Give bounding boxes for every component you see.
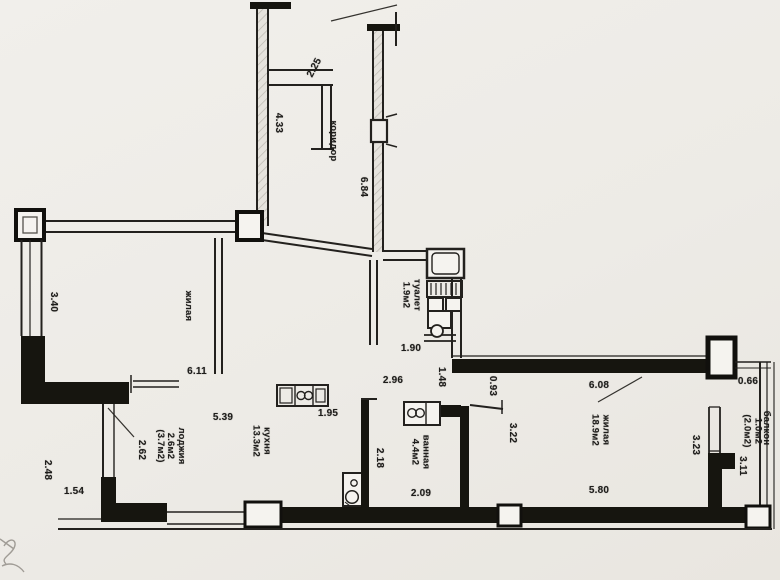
floor-plan-scan: 2.25 4.33 коридор 6.84 туалет 1.9м2 1.90… <box>0 0 780 580</box>
dim-room2-glazing: 3.40 <box>48 292 58 312</box>
balcony-area-label: 1.0м2 (2.0м2) <box>741 414 762 447</box>
dim-balcony-length: 3.11 <box>737 456 747 476</box>
washing-machine-icon <box>404 402 440 425</box>
room-label-corridor: коридор <box>328 120 338 161</box>
balcony-area-alt: (2.0м2) <box>741 414 752 447</box>
dim-corridor-upper: 4.33 <box>273 113 283 133</box>
room-label-loggia: лоджия 2.6м2 (3.7м2) <box>154 428 186 465</box>
loggia-area: 2.6м2 <box>165 428 176 465</box>
living-room-walls <box>452 338 735 377</box>
kitchen-sink-icon <box>343 473 364 506</box>
loggia-area-alt: (3.7м2) <box>154 428 165 465</box>
dim-toilet-width: 1.90 <box>401 344 421 354</box>
living-area: 18.9м2 <box>589 414 600 446</box>
dim-living-bottom: 5.80 <box>589 486 609 496</box>
dim-living-right: 3.23 <box>690 435 700 455</box>
dim-hall-depth: 1.48 <box>436 367 446 387</box>
floor-plan-drawing <box>0 0 780 580</box>
toilet-area: 1.9м2 <box>400 279 411 311</box>
dim-living-top: 6.08 <box>589 381 609 391</box>
dim-kitchen-width: 5.39 <box>213 413 233 423</box>
room-label-bathroom: ванная 4.4м2 <box>409 435 430 470</box>
dim-loggia-width: 1.54 <box>64 487 84 497</box>
dim-living-entry: 0.93 <box>487 376 497 396</box>
kitchen-area: 13.3м2 <box>250 425 261 457</box>
room-label-toilet: туалет 1.9м2 <box>400 279 421 311</box>
dim-balcony-gap: 0.66 <box>738 377 758 387</box>
kitchen-counter-stove-icon <box>277 385 328 406</box>
room-label-living: жилая 18.9м2 <box>589 414 610 446</box>
dim-hall-width: 2.96 <box>383 376 403 386</box>
kitchen-name: кухня <box>261 425 272 457</box>
room-label-balcony: балкон <box>761 411 771 446</box>
room-label-room2: жилая <box>183 291 193 321</box>
loggia-name: лоджия <box>175 428 186 465</box>
dim-kitchen-left: 2.62 <box>136 440 146 460</box>
bathroom-name: ванная <box>420 435 431 470</box>
toilet-fixtures <box>427 249 464 337</box>
corridor-door <box>371 114 397 147</box>
dim-bath-height: 2.18 <box>374 448 384 468</box>
dim-loggia-height: 2.48 <box>42 460 52 480</box>
dim-living-left: 3.22 <box>507 423 517 443</box>
dim-bath-width: 2.09 <box>411 489 431 499</box>
signature-scribble <box>0 539 24 572</box>
living-name: жилая <box>600 414 611 446</box>
dim-corridor-length: 6.84 <box>358 177 368 197</box>
bathroom-area: 4.4м2 <box>409 435 420 470</box>
toilet-name: туалет <box>411 279 422 311</box>
room-label-kitchen: кухня 13.3м2 <box>250 425 271 457</box>
dim-room2-width: 6.11 <box>187 367 207 377</box>
dim-kitchen-counter: 1.95 <box>318 409 338 419</box>
